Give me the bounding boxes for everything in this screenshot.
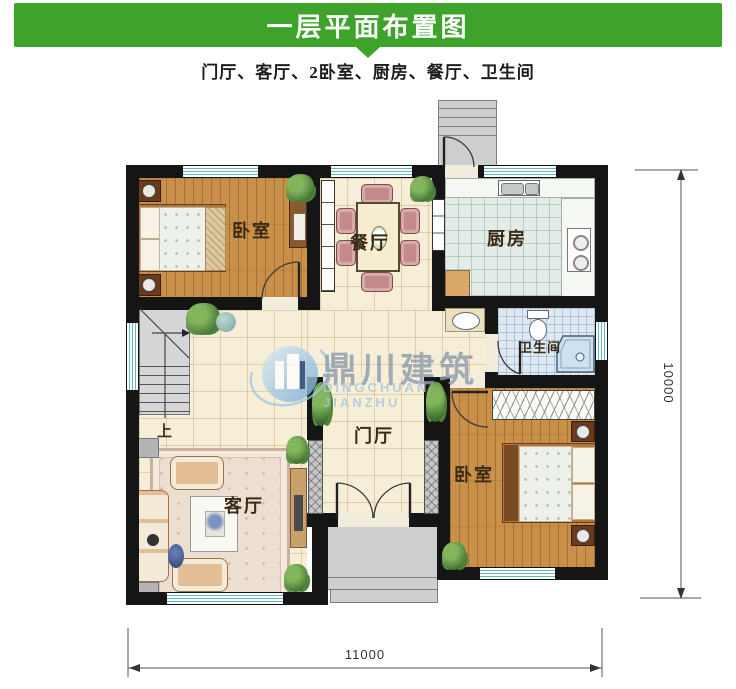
- sink-bowl: [501, 183, 524, 195]
- wall: [409, 513, 440, 527]
- logo-building-bar: [287, 354, 299, 389]
- blanket: [205, 207, 226, 271]
- toilet-tank: [527, 310, 549, 319]
- logo-building-bar: [300, 361, 305, 389]
- living-bottom-window: [167, 592, 283, 605]
- dresser: [289, 198, 307, 248]
- bedroom1-door-opening: [262, 297, 298, 310]
- tv: [294, 495, 303, 531]
- bed-footboard: [504, 445, 518, 521]
- floor-vase: [168, 544, 184, 568]
- wall: [126, 592, 167, 605]
- wall: [555, 567, 608, 580]
- pillow: [572, 447, 595, 483]
- floor-plan-page: 一层平面布置图 门厅、客厅、2卧室、厨房、餐厅、卫生间: [0, 0, 736, 689]
- page-title: 一层平面布置图: [266, 7, 469, 44]
- nightstand: [137, 274, 161, 296]
- width-dimension-label: 11000: [335, 647, 395, 662]
- nightstand: [571, 421, 595, 442]
- wall: [298, 297, 320, 310]
- living-label: 客厅: [224, 492, 264, 518]
- entry-porch: [326, 520, 438, 578]
- stairs-up-label: 上: [157, 420, 174, 441]
- wall: [432, 165, 445, 199]
- floor-lamp: [147, 534, 159, 546]
- stairs-left-window: [126, 323, 139, 390]
- round-bush: [216, 312, 236, 332]
- entry-door-opening: [338, 513, 409, 527]
- wall: [126, 390, 139, 605]
- burner: [573, 235, 589, 251]
- bedroom2-label: 卧室: [454, 461, 494, 487]
- armchair: [170, 456, 224, 490]
- table-decor: [205, 511, 225, 537]
- dining-chair: [361, 272, 393, 292]
- burner: [573, 255, 589, 271]
- dining-chair: [361, 184, 393, 204]
- kitchen-cabinet: [445, 270, 470, 298]
- pillow: [140, 207, 160, 239]
- page-title-bar: 一层平面布置图: [14, 3, 722, 47]
- wall: [595, 360, 608, 580]
- back-porch-steps: [438, 100, 497, 138]
- entry-porch-step2: [330, 589, 438, 603]
- bedroom1-top-window: [183, 165, 258, 178]
- dining-label: 餐厅: [350, 229, 390, 255]
- dining-top-window: [331, 165, 412, 178]
- kitchen-pass-through: [432, 199, 445, 251]
- pillow: [140, 239, 160, 271]
- wall: [432, 296, 608, 308]
- dresser-top: [293, 213, 306, 241]
- bathroom-right-window: [595, 322, 608, 360]
- back-door-opening: [445, 165, 478, 178]
- stove: [567, 228, 591, 272]
- watermark: 鼎川建筑 DINGCHUAN JIANZHU: [262, 340, 492, 400]
- room-list-subtitle: 门厅、客厅、2卧室、厨房、餐厅、卫生间: [0, 58, 736, 83]
- wall: [485, 308, 498, 334]
- nightstand: [571, 525, 595, 546]
- bed: [137, 204, 226, 272]
- bedroom2-bottom-window: [480, 567, 555, 580]
- mattress: [159, 207, 206, 271]
- bed: [502, 443, 596, 523]
- bathroom-label: 卫生间: [519, 337, 561, 356]
- kitchen-sink: [498, 180, 540, 196]
- dining-chair: [400, 240, 420, 266]
- logo-building-bar: [275, 361, 284, 389]
- wall: [487, 375, 608, 388]
- title-pointer-triangle: [356, 47, 380, 58]
- tv-cabinet: [290, 468, 307, 548]
- washbasin-counter: [445, 308, 485, 332]
- wall: [312, 513, 328, 605]
- pillow: [572, 484, 595, 520]
- height-dimension-label: 10000: [661, 352, 676, 414]
- staircase-treads: [139, 358, 190, 415]
- bedroom1-label: 卧室: [232, 217, 272, 243]
- kitchen-top-window: [484, 165, 556, 178]
- kitchen-label: 厨房: [487, 225, 527, 251]
- washbasin: [452, 312, 480, 330]
- wardrobe: [492, 390, 595, 420]
- entry-pillar-left: [308, 440, 323, 514]
- sink-bowl: [525, 183, 539, 195]
- dining-cabinet: [321, 180, 335, 292]
- dining-chair: [400, 208, 420, 234]
- watermark-logo-icon: [262, 346, 318, 402]
- mattress: [519, 446, 572, 522]
- watermark-name-en: DINGCHUAN JIANZHU: [323, 380, 492, 410]
- nightstand: [137, 180, 161, 202]
- entry-pillar-right: [424, 440, 439, 514]
- entry-hall-label: 门厅: [354, 422, 394, 448]
